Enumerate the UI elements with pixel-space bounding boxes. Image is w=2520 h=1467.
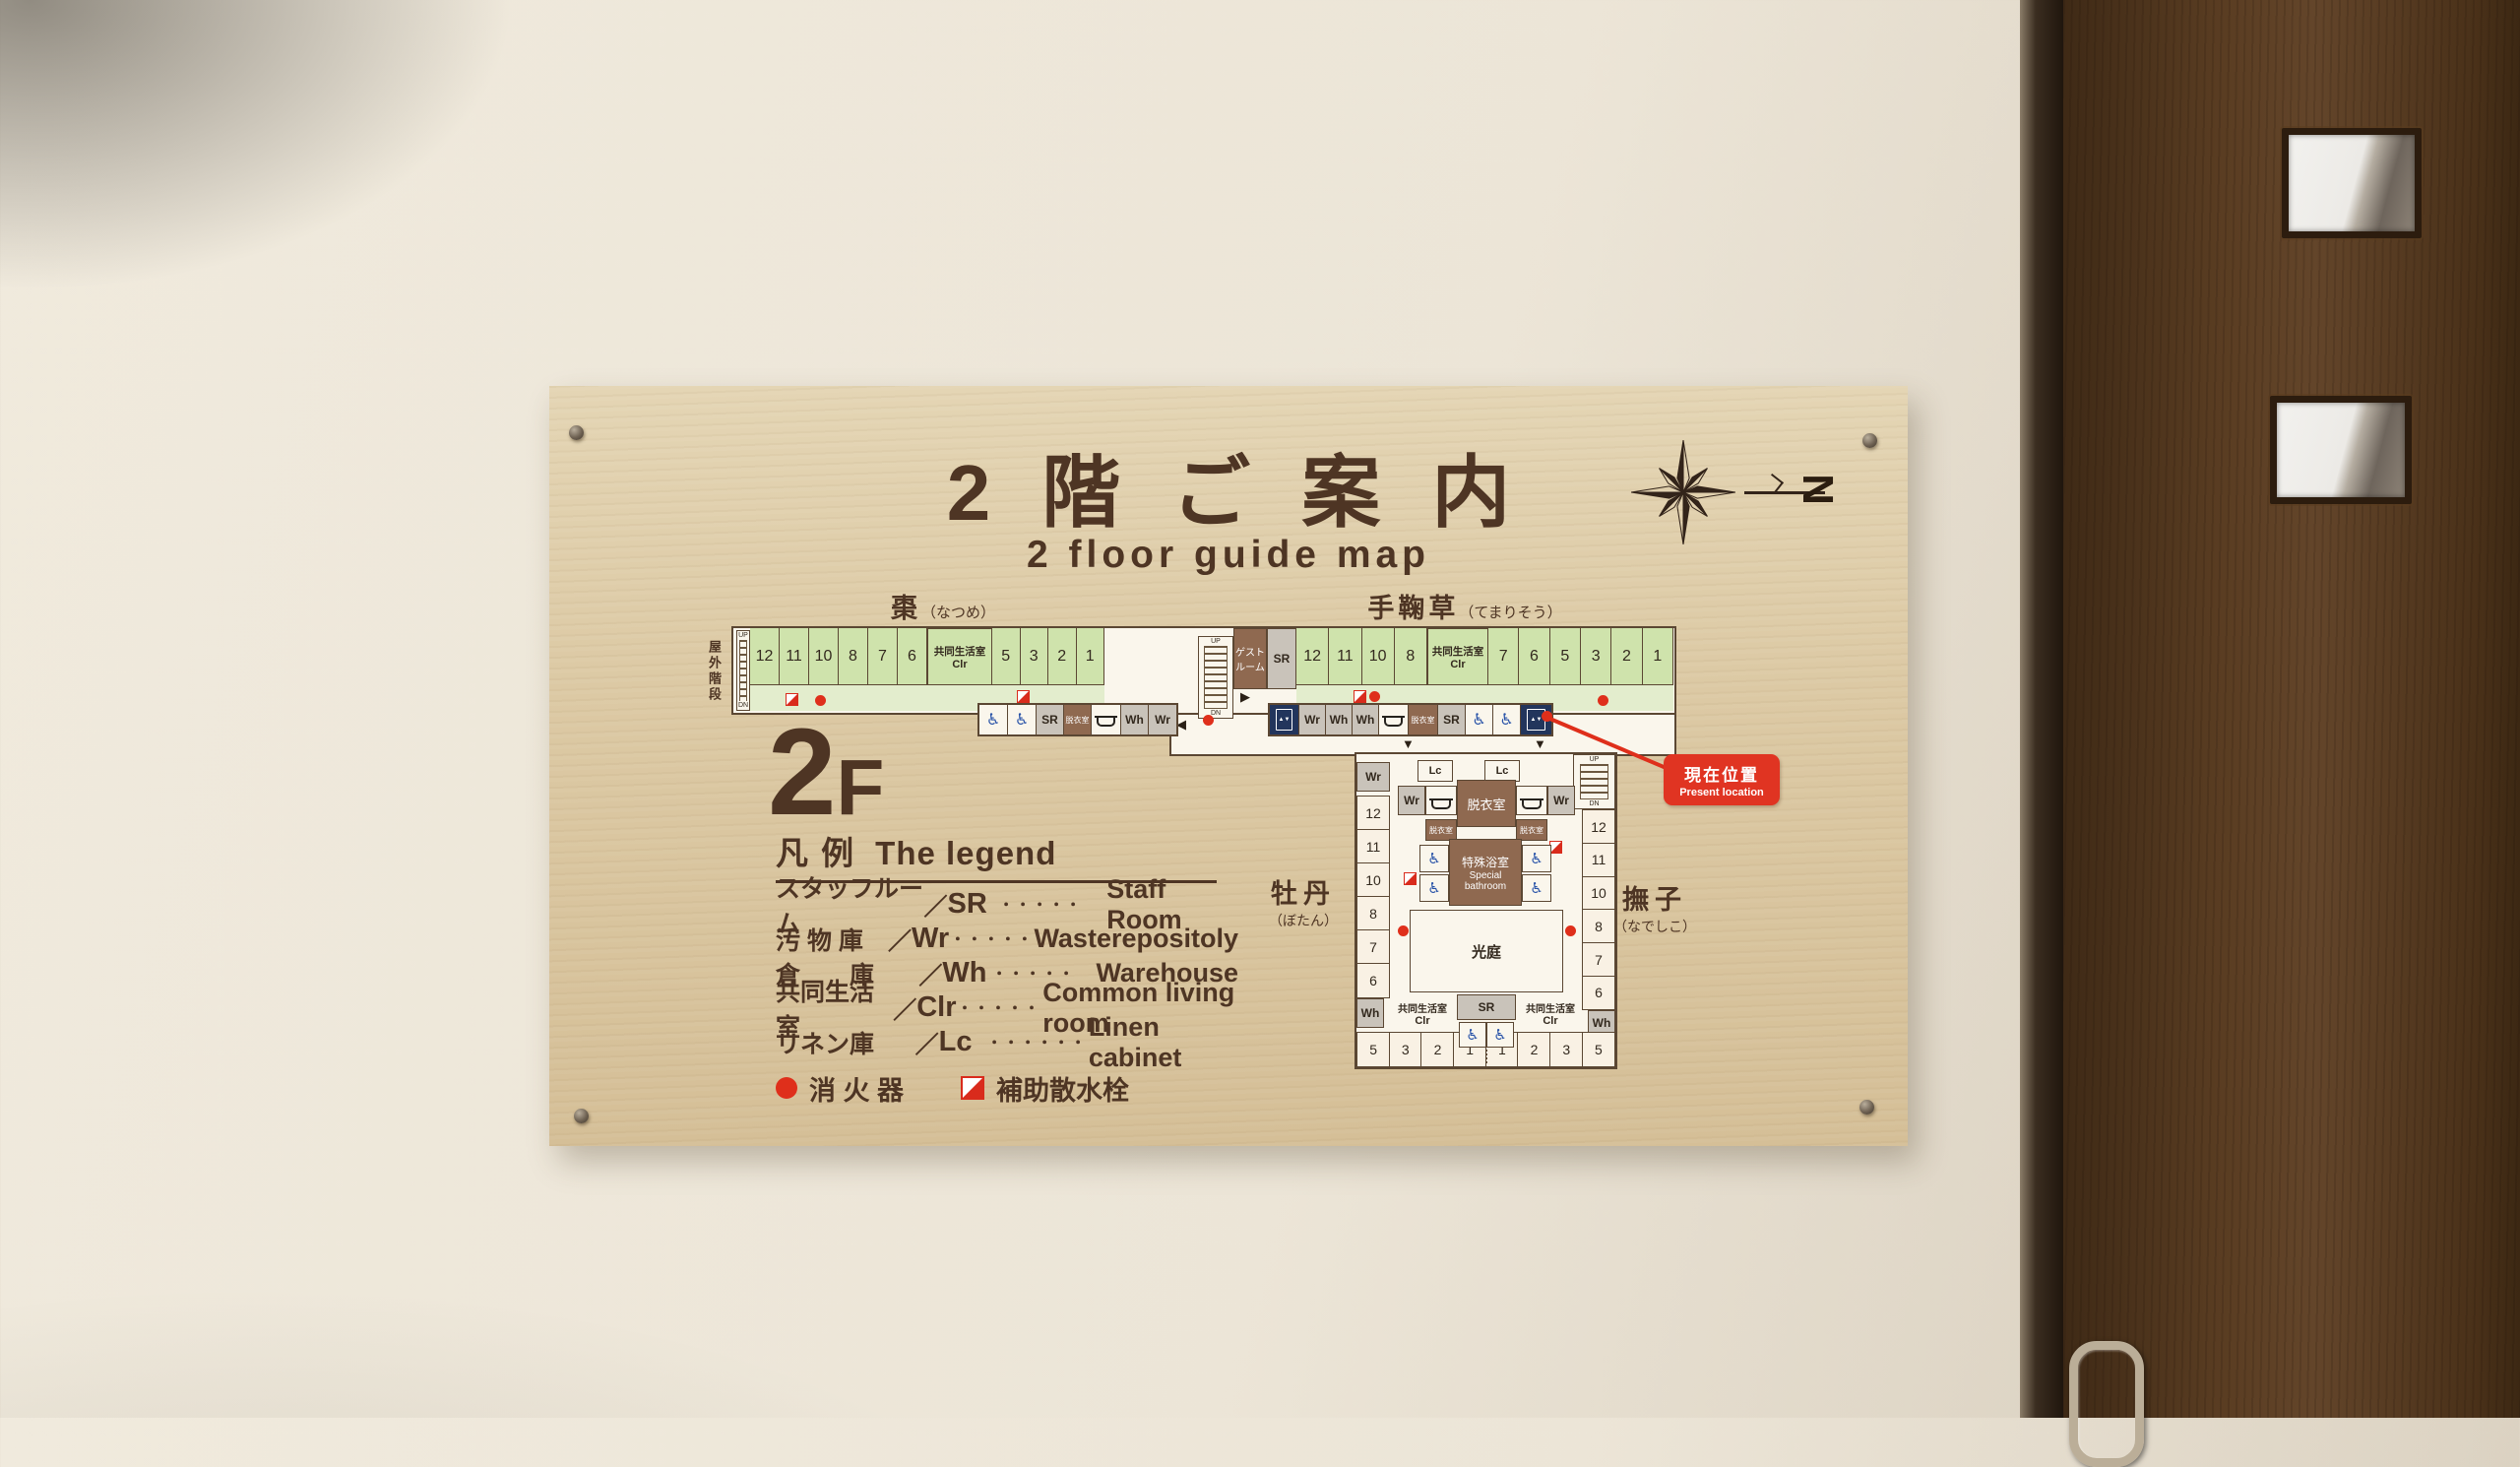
door-frame xyxy=(2020,0,2065,1418)
right-arrow-icon: ▶ xyxy=(1240,689,1250,705)
wheelchair-icon: ♿ xyxy=(1466,705,1493,734)
staff-room-block: SR xyxy=(1457,994,1516,1020)
block-stairs-icon: UP DN xyxy=(1573,754,1615,809)
fire-extinguisher-icon xyxy=(776,1077,797,1099)
wheelchair-icon: ♿ xyxy=(1486,1022,1514,1048)
left-wing-rooms-2: 5321 xyxy=(992,628,1104,685)
guest-room: ゲストルーム xyxy=(1233,628,1267,689)
service-cell: Wh xyxy=(1121,705,1149,734)
block-col-left: 121110876 xyxy=(1356,796,1390,998)
clr-room-right-wing: 共同生活室 Clr xyxy=(1427,628,1488,685)
room-cell: 8 xyxy=(839,628,868,685)
service-cell: Wr xyxy=(1149,705,1176,734)
special-bathroom: 特殊浴室 Special bathroom xyxy=(1449,839,1522,906)
room-cell: 7 xyxy=(1356,929,1390,965)
room-cell: 2 xyxy=(1611,628,1642,685)
north-arrow-letter: N xyxy=(1793,474,1842,505)
room-cell: 3 xyxy=(1021,628,1049,685)
room-cell: 5 xyxy=(1356,1032,1390,1067)
fire-extinguisher-dot xyxy=(1398,925,1409,936)
legend-row: リネン庫 ／ Lc ・・・・・・ Linen cabinet xyxy=(776,1030,1238,1055)
sprinkler-marker xyxy=(1017,690,1030,703)
room-cell: 3 xyxy=(1549,1032,1583,1067)
compass: N xyxy=(1628,437,1874,555)
room-cell: 10 xyxy=(1356,862,1390,898)
service-cell: Wr xyxy=(1299,705,1326,734)
room-cell: 2 xyxy=(1420,1032,1454,1067)
service-cell: SR xyxy=(1037,705,1064,734)
legend-markers: 消 火 器 補助散水栓 xyxy=(776,1069,1238,1108)
room-cell: 8 xyxy=(1395,628,1427,685)
room-cell: 6 xyxy=(1356,963,1390,998)
compass-rose-icon xyxy=(1628,437,1738,547)
fire-extinguisher-dot xyxy=(1369,691,1380,702)
service-cell: SR xyxy=(1438,705,1466,734)
room-cell: 12 xyxy=(1356,796,1390,831)
room-cell: 6 xyxy=(1519,628,1549,685)
service-cell: Wh xyxy=(1326,705,1353,734)
dressing-room-small: 脱衣室 xyxy=(1516,819,1547,841)
screw-top-left xyxy=(569,425,584,440)
right-wing-rooms-1: 1211108 xyxy=(1296,628,1427,685)
clr-room-block-right: 共同生活室 Clr xyxy=(1516,1000,1585,1027)
linen-cabinet: Lc xyxy=(1417,760,1453,782)
bath-icon xyxy=(1379,705,1409,734)
right-wing-rooms-2: 765321 xyxy=(1488,628,1673,685)
block-label-nadeshiko: 撫子 （なでしこ） xyxy=(1601,878,1709,936)
fire-extinguisher-dot xyxy=(1203,715,1214,726)
down-arrow-icon: ▼ xyxy=(1534,736,1546,751)
room-cell: 2 xyxy=(1517,1032,1550,1067)
wheelchair-icon: ♿ xyxy=(1522,845,1551,872)
service-cell: 脱衣室 xyxy=(1409,705,1438,734)
sprinkler-marker xyxy=(1354,690,1366,703)
elevator-icon xyxy=(1270,705,1299,734)
sprinkler-marker xyxy=(1404,872,1417,885)
service-cell: Wh xyxy=(1353,705,1379,734)
dressing-room-small: 脱衣室 xyxy=(1425,819,1457,841)
room-cell: 6 xyxy=(898,628,927,685)
room-cell: 7 xyxy=(1488,628,1519,685)
staff-room-junction: SR xyxy=(1267,628,1296,689)
lower-block-plan: UP DN Wr 121110876 Wh 121110876 Wh 53211… xyxy=(1354,752,1617,1069)
junction-stairs-icon: UP DN xyxy=(1198,636,1233,719)
room-cell: 12 xyxy=(1296,628,1329,685)
door-window-top xyxy=(2282,128,2422,238)
room-cell: 7 xyxy=(1582,942,1615,977)
service-row-left: ♿♿SR脱衣室WhWr xyxy=(977,703,1178,736)
floor-badge: 2F xyxy=(768,711,884,834)
wheelchair-icon: ♿ xyxy=(1493,705,1521,734)
room-cell: 6 xyxy=(1582,976,1615,1010)
bath-icon xyxy=(1516,786,1547,815)
room-cell: 10 xyxy=(809,628,839,685)
door-handle xyxy=(2069,1341,2144,1467)
sign-board: 2階ご案内 2 floor guide map N 棗（なつめ） 手鞠草（てまり… xyxy=(549,386,1908,1146)
room-cell: 3 xyxy=(1389,1032,1422,1067)
legend-heading: 凡 例The legend xyxy=(776,827,1238,874)
light-court: 光庭 xyxy=(1410,910,1563,992)
room-cell: 5 xyxy=(992,628,1021,685)
clr-room-left-wing: 共同生活室 Clr xyxy=(927,628,992,685)
wheelchair-icon: ♿ xyxy=(1459,1022,1486,1048)
wheelchair-icon: ♿ xyxy=(979,705,1008,734)
wheelchair-icon: ♿ xyxy=(1419,845,1449,872)
wr-room: Wr xyxy=(1356,762,1390,792)
room-cell: 11 xyxy=(1329,628,1361,685)
room-cell: 7 xyxy=(868,628,898,685)
wheelchair-icon: ♿ xyxy=(1419,874,1449,902)
wh-room: Wh xyxy=(1356,998,1384,1028)
room-cell: 11 xyxy=(780,628,809,685)
service-row-right: WrWhWh脱衣室SR♿♿ xyxy=(1268,703,1553,736)
room-cell: 12 xyxy=(1582,809,1615,844)
dotted-path xyxy=(1485,1050,1487,1063)
room-cell: 1 xyxy=(1643,628,1673,685)
wing-label-temarisou: 手鞠草（てまりそう） xyxy=(1337,587,1593,625)
fire-extinguisher-dot xyxy=(1565,925,1576,936)
wr-room: Wr xyxy=(1398,786,1425,815)
clr-room-block-left: 共同生活室 Clr xyxy=(1388,1000,1457,1027)
floor-plan-wings: UP DN 121110876 共同生活室 Clr 5321 UP DN ゲスト… xyxy=(731,626,1676,715)
room-cell: 2 xyxy=(1048,628,1077,685)
wr-room: Wr xyxy=(1547,786,1575,815)
legend: 凡 例The legend スタッフルーム ／ SR ・・・・・ Staff R… xyxy=(776,827,1238,1108)
screw-bottom-left xyxy=(574,1109,589,1123)
wheelchair-icon: ♿ xyxy=(1008,705,1037,734)
left-wing-rooms-1: 121110876 xyxy=(750,628,927,685)
room-cell: 5 xyxy=(1582,1032,1615,1067)
room-cell: 1 xyxy=(1077,628,1105,685)
screw-bottom-right xyxy=(1859,1100,1874,1115)
room-cell: 10 xyxy=(1362,628,1395,685)
outdoor-stairs-icon: UP DN xyxy=(736,630,750,711)
room-cell: 12 xyxy=(750,628,780,685)
down-arrow-icon: ▼ xyxy=(1402,736,1415,751)
dressing-room: 脱衣室 xyxy=(1457,780,1516,827)
wing-label-natsume: 棗（なつめ） xyxy=(845,587,1041,625)
present-location-callout: 現在位置 Present location xyxy=(1664,754,1780,805)
room-cell: 11 xyxy=(1582,843,1615,877)
room-cell: 5 xyxy=(1550,628,1581,685)
linen-cabinet: Lc xyxy=(1484,760,1520,782)
bath-icon xyxy=(1425,786,1457,815)
block-label-botan: 牡丹 （ぼたん） xyxy=(1254,872,1353,930)
bath-icon xyxy=(1092,705,1121,734)
fire-extinguisher-dot xyxy=(1598,695,1608,706)
outdoor-stairs-label: 屋外階段 xyxy=(705,640,724,729)
legend-rows: スタッフルーム ／ SR ・・・・・ Staff Room 汚 物 庫 ／ Wr… xyxy=(776,892,1238,1055)
service-cell: 脱衣室 xyxy=(1064,705,1092,734)
door-window-bottom xyxy=(2270,396,2412,504)
room-cell: 3 xyxy=(1581,628,1611,685)
room-cell: 11 xyxy=(1356,829,1390,864)
sprinkler-icon xyxy=(961,1076,984,1100)
legend-row: スタッフルーム ／ SR ・・・・・ Staff Room xyxy=(776,892,1238,918)
wheelchair-icon: ♿ xyxy=(1522,874,1551,902)
room-cell: 8 xyxy=(1356,896,1390,931)
legend-row: 汚 物 庫 ／ Wr ・・・・・ Wasterepositoly xyxy=(776,926,1238,952)
